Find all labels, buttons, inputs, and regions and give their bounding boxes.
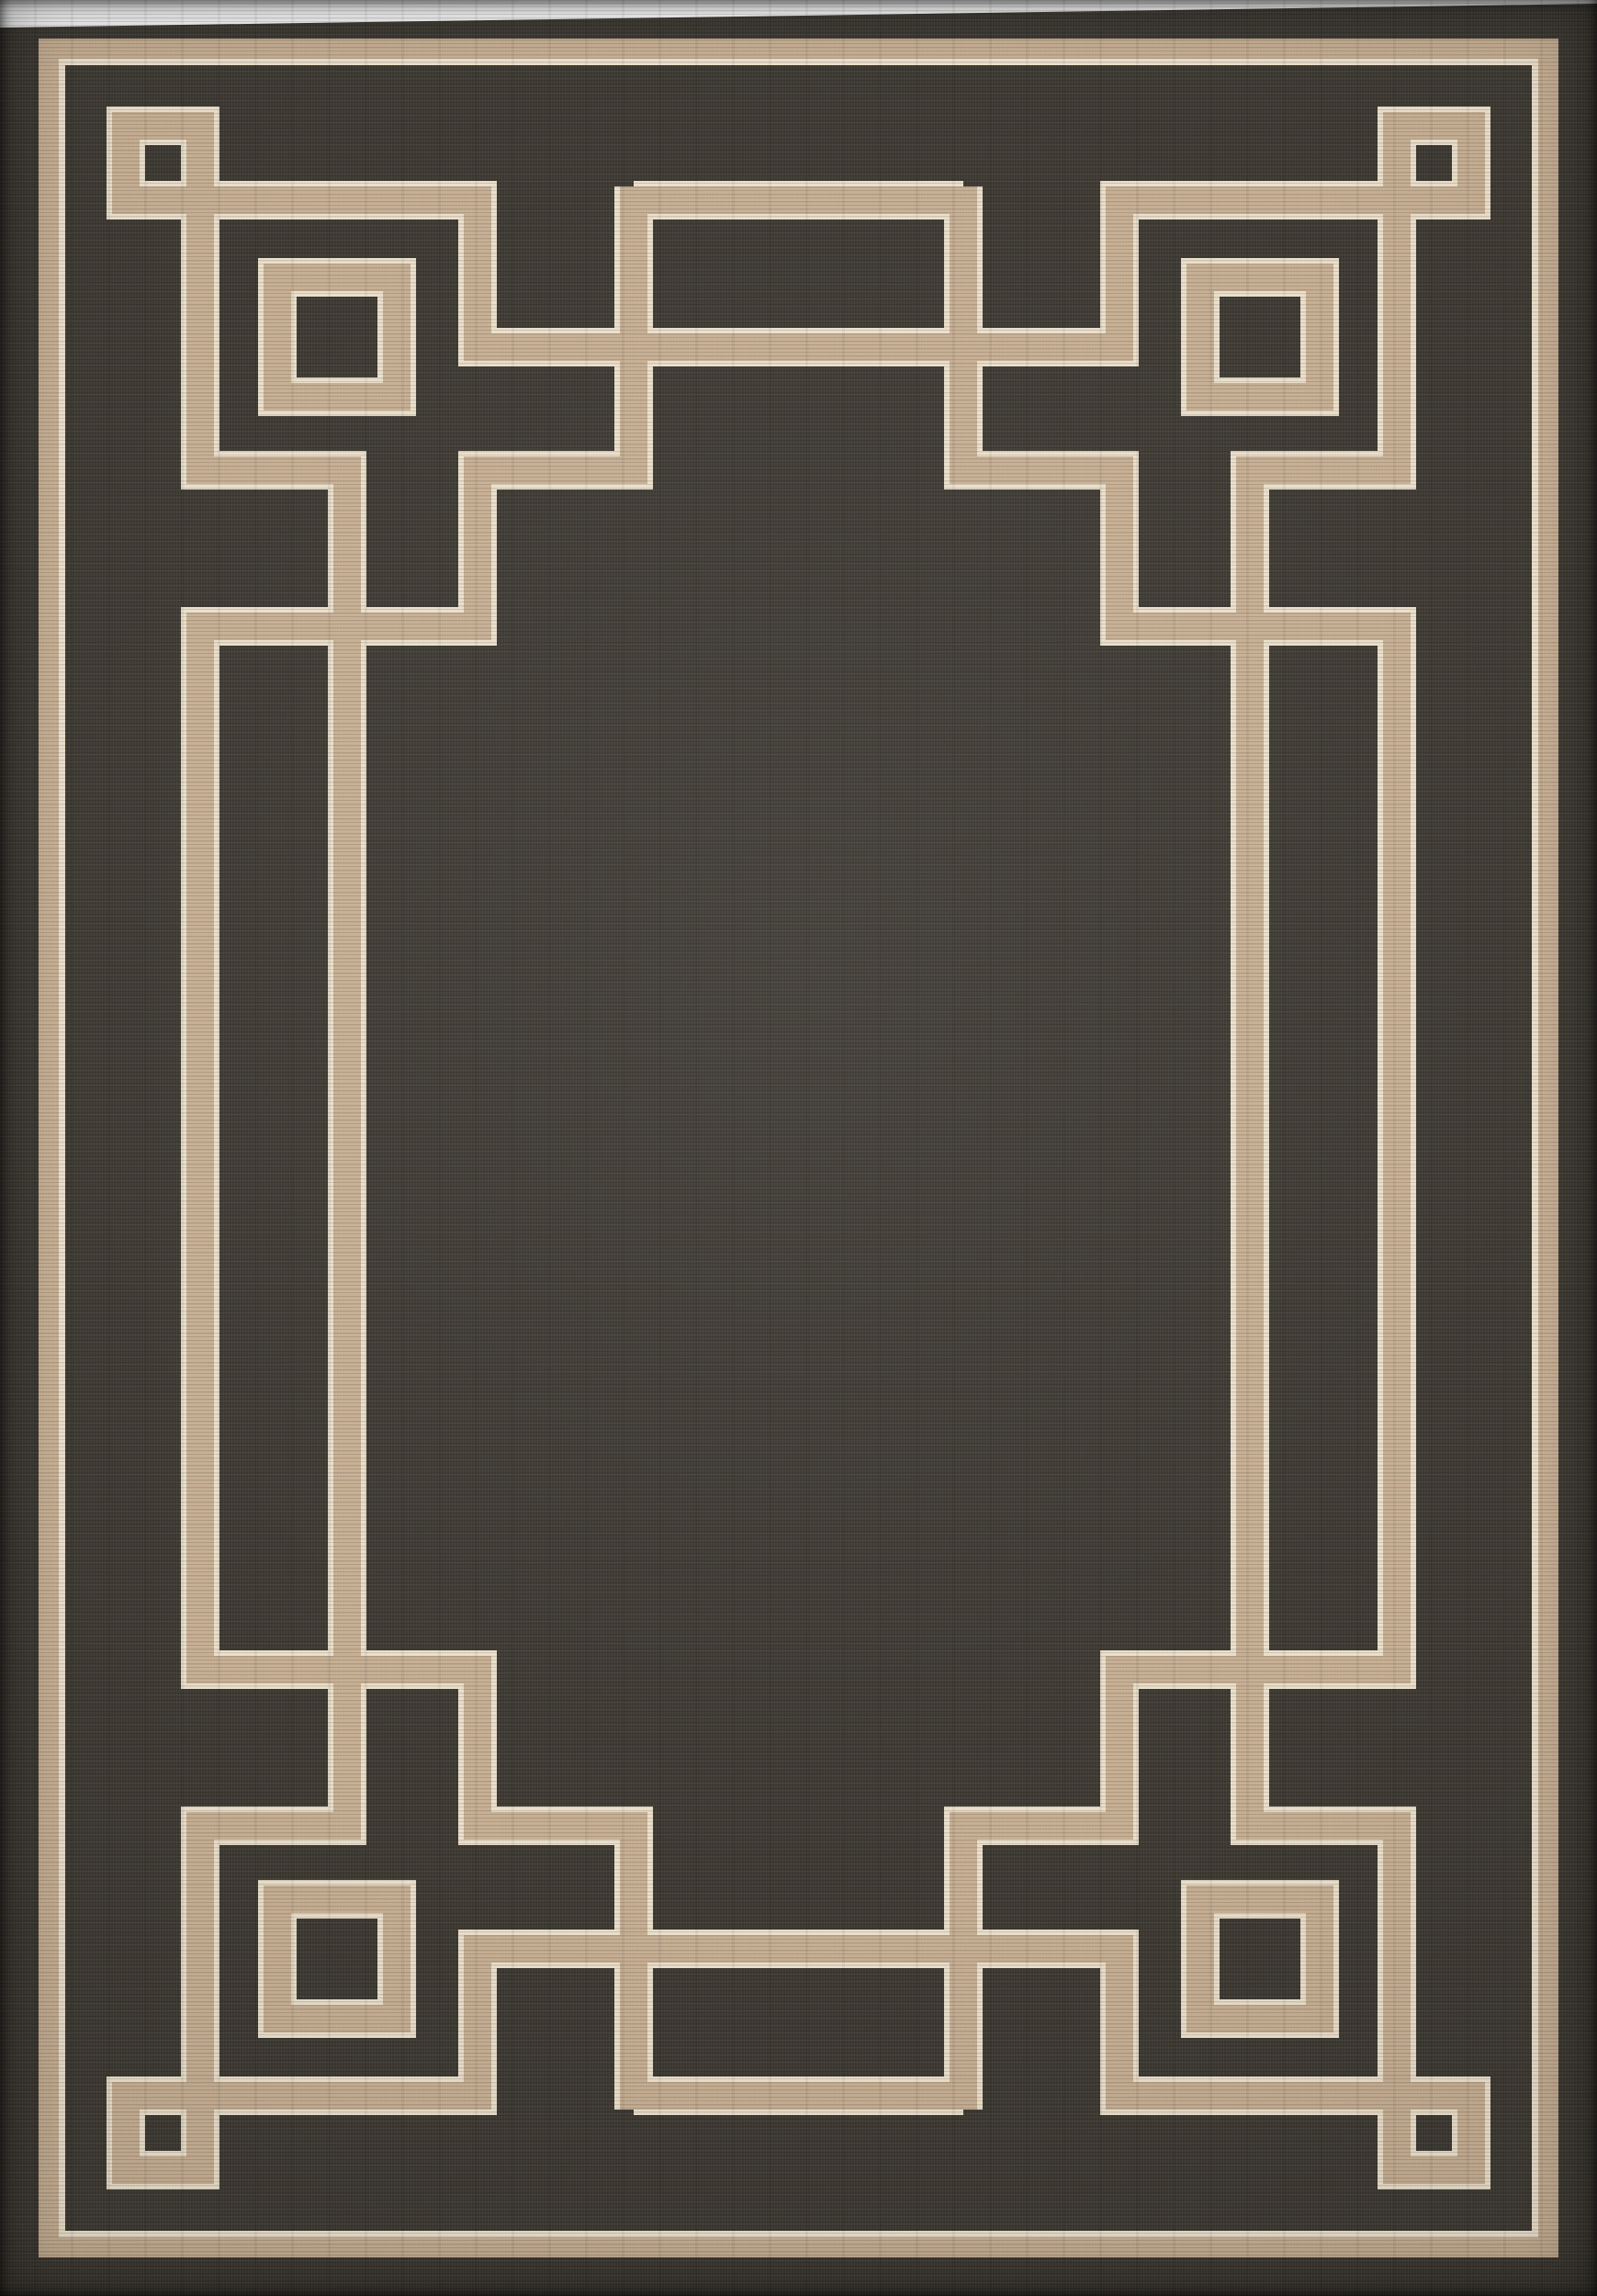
border-pattern-svg xyxy=(0,0,1597,2296)
corner-small-square-top-left xyxy=(126,126,200,200)
background-sliver xyxy=(0,0,1597,28)
fret-right-inner-line xyxy=(1250,200,1397,2096)
corner-large-square-top-right xyxy=(1200,277,1320,397)
tan-pass xyxy=(126,126,1471,2170)
corner-large-square-bottom-left xyxy=(277,1899,397,2019)
rug-product-photo xyxy=(0,0,1597,2296)
corner-small-square-bottom-right xyxy=(1397,2096,1471,2170)
corner-large-square-bottom-right xyxy=(1200,1899,1320,2019)
rug xyxy=(0,0,1597,2296)
corner-large-square-top-left xyxy=(277,277,397,397)
cream-pass xyxy=(126,126,1471,2170)
corner-small-square-bottom-left xyxy=(126,2096,200,2170)
fret-left-inner-line xyxy=(200,200,347,2096)
corner-small-square-top-right xyxy=(1397,126,1471,200)
